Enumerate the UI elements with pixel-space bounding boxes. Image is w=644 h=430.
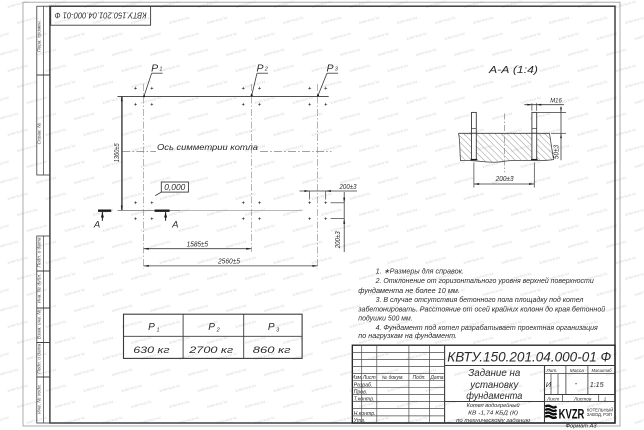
svg-text:Лист: Лист xyxy=(362,375,376,381)
svg-text:забетонировать. Расстояние о: забетонировать. Расстояние от осей крайн… xyxy=(357,304,605,313)
svg-text:по техническому заданию: по техническому заданию xyxy=(456,418,531,424)
svg-text:Подп. и дата: Подп. и дата xyxy=(36,343,42,373)
svg-text:Подп.: Подп. xyxy=(412,375,425,381)
svg-text:2700 кг: 2700 кг xyxy=(188,345,234,355)
svg-text:Разраб.: Разраб. xyxy=(354,383,373,389)
svg-text:Лист: Лист xyxy=(546,397,559,403)
svg-text:Подп. и дата: Подп. и дата xyxy=(36,237,42,267)
svg-text:2: 2 xyxy=(264,66,268,72)
svg-text:КВТУ.150.201.04.000-01 Ф: КВТУ.150.201.04.000-01 Ф xyxy=(447,350,611,365)
svg-text:2. Отклонение от горизонтал: 2. Отклонение от горизонтального уровня … xyxy=(375,276,594,285)
svg-text:Справ. №: Справ. № xyxy=(36,123,42,145)
svg-text:KVZR: KVZR xyxy=(559,406,585,422)
svg-text:0,000: 0,000 xyxy=(164,183,186,192)
svg-text:Перв. примен.: Перв. примен. xyxy=(36,20,42,52)
svg-text:1: 1 xyxy=(156,328,159,334)
svg-text:2: 2 xyxy=(216,328,220,334)
svg-text:Т.контр.: Т.контр. xyxy=(354,396,375,402)
svg-text:200±3: 200±3 xyxy=(339,184,357,191)
svg-text:200±3: 200±3 xyxy=(495,176,514,183)
svg-text:Дата: Дата xyxy=(429,375,443,381)
svg-text:фундамента: фундамента xyxy=(466,390,522,402)
svg-text:1585±5: 1585±5 xyxy=(187,241,209,248)
svg-text:1: 1 xyxy=(604,397,607,403)
svg-text:Лит.: Лит. xyxy=(545,368,557,374)
svg-text:Масштаб: Масштаб xyxy=(592,368,612,374)
svg-text:Р: Р xyxy=(257,62,264,74)
svg-text:КВ -1,74 КБД (К): КВ -1,74 КБД (К) xyxy=(468,411,518,417)
svg-text:по нагрузкам на фундамент.: по нагрузкам на фундамент. xyxy=(358,331,457,340)
svg-text:установку: установку xyxy=(469,380,519,391)
svg-text:КВТУ.150.201.04.000-01 Ф: КВТУ.150.201.04.000-01 Ф xyxy=(54,11,146,20)
svg-text:Задание на: Задание на xyxy=(468,368,520,379)
svg-text:-: - xyxy=(575,379,578,388)
svg-text:М16: М16 xyxy=(550,98,562,105)
svg-text:200±3: 200±3 xyxy=(335,231,342,249)
svg-text:Р: Р xyxy=(268,322,275,333)
svg-text:50±3: 50±3 xyxy=(553,145,560,159)
svg-text:Инв. № подл.: Инв. № подл. xyxy=(36,384,42,414)
svg-text:Изм.: Изм. xyxy=(352,375,363,381)
svg-text:Пров.: Пров. xyxy=(354,390,368,396)
svg-text:фундамента не более 10 мм.: фундамента не более 10 мм. xyxy=(358,286,460,295)
svg-text:1:15: 1:15 xyxy=(590,380,605,389)
svg-text:Утв.: Утв. xyxy=(354,418,366,424)
svg-text:№ докум.: № докум. xyxy=(382,375,404,381)
svg-text:Котел водогрейный: Котел водогрейный xyxy=(467,402,521,409)
svg-text:2560±5: 2560±5 xyxy=(217,259,240,266)
svg-text:И: И xyxy=(546,380,552,389)
svg-text:860 кг: 860 кг xyxy=(253,345,292,355)
svg-text:ЗАВОД, РЭП: ЗАВОД, РЭП xyxy=(587,412,612,417)
svg-text:Р: Р xyxy=(327,62,334,74)
svg-text:А-А (1:4): А-А (1:4) xyxy=(488,65,538,76)
svg-text:Инв. № дубл.: Инв. № дубл. xyxy=(36,274,42,304)
svg-text:Р: Р xyxy=(208,322,215,333)
svg-text:630 кг: 630 кг xyxy=(133,345,170,355)
svg-text:3. В случае отсутствия бет: 3. В случае отсутствия бетонного пола пл… xyxy=(376,295,584,304)
svg-text:подушки 500 мм.: подушки 500 мм. xyxy=(358,313,412,322)
svg-text:Н.контр.: Н.контр. xyxy=(354,411,376,417)
svg-text:Масса: Масса xyxy=(570,368,585,374)
svg-text:1: 1 xyxy=(159,66,162,72)
svg-text:А: А xyxy=(171,220,178,231)
svg-text:Р: Р xyxy=(151,62,158,74)
svg-text:1. ∗Размеры для справок.: 1. ∗Размеры для справок. xyxy=(376,266,464,275)
svg-text:Взам. инв. №: Взам. инв. № xyxy=(36,309,42,339)
svg-text:Формат А3: Формат А3 xyxy=(566,423,598,429)
svg-text:Листов: Листов xyxy=(573,397,592,403)
svg-text:1360±5: 1360±5 xyxy=(114,143,121,162)
svg-text:А: А xyxy=(93,220,100,231)
svg-text:Ось симметрии котла: Ось симметрии котла xyxy=(157,143,258,152)
svg-text:Р: Р xyxy=(148,322,155,333)
